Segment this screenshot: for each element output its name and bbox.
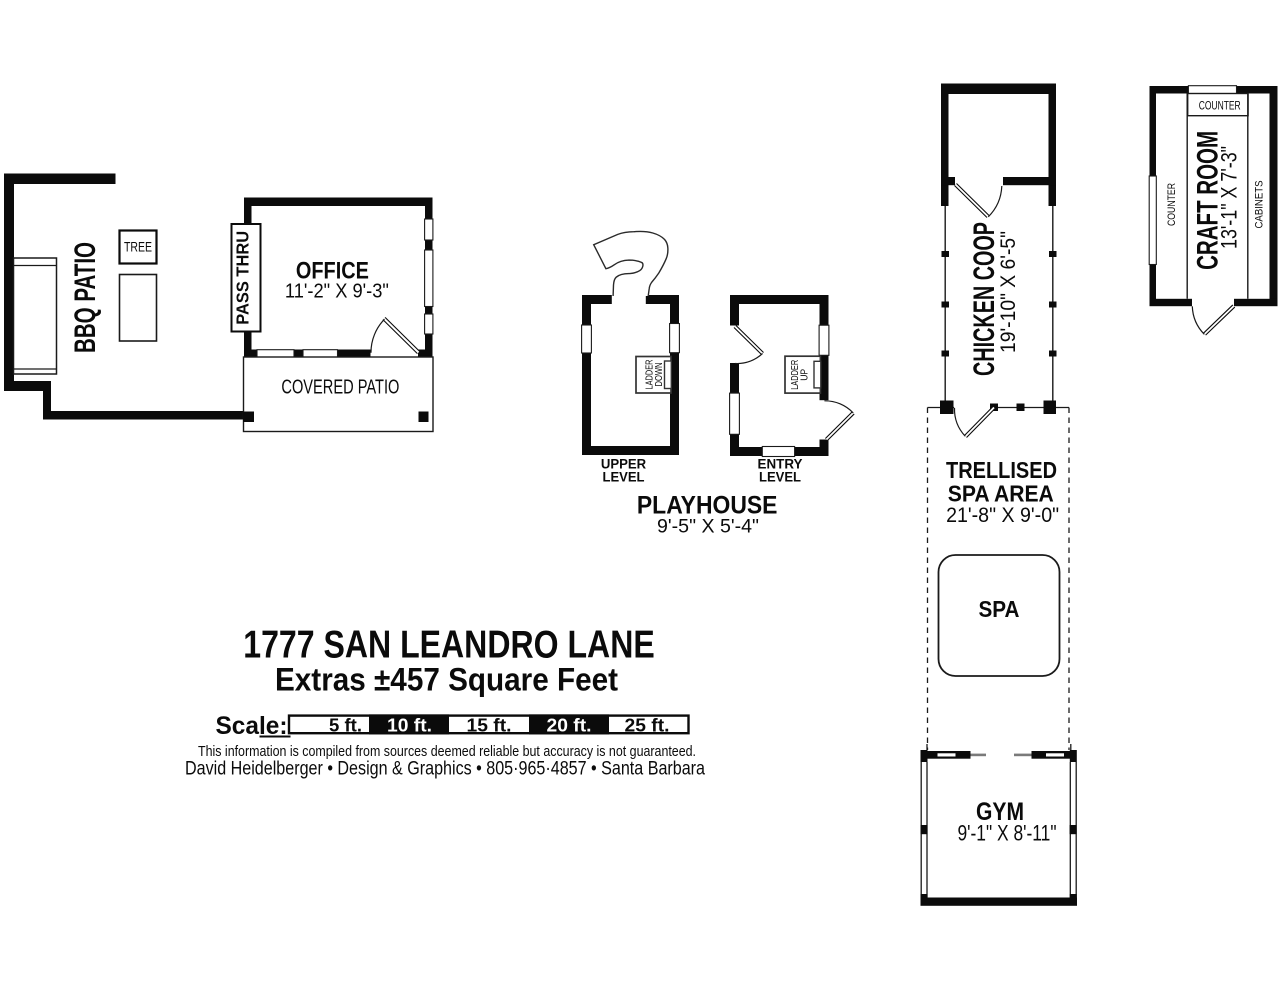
svg-text:21'-8" X 9'-0": 21'-8" X 9'-0" bbox=[946, 504, 1059, 527]
svg-text:11'-2" X 9'-3": 11'-2" X 9'-3" bbox=[285, 281, 389, 303]
svg-text:19'-10" X 6'-5": 19'-10" X 6'-5" bbox=[996, 231, 1020, 353]
svg-text:PASS THRU: PASS THRU bbox=[233, 231, 253, 325]
svg-text:13'-1" X 7'-3": 13'-1" X 7'-3" bbox=[1217, 146, 1242, 249]
svg-text:TREE: TREE bbox=[124, 239, 152, 255]
svg-text:9'-1" X 8'-11": 9'-1" X 8'-11" bbox=[958, 821, 1057, 846]
svg-text:SPA AREA: SPA AREA bbox=[948, 481, 1054, 507]
svg-text:COVERED PATIO: COVERED PATIO bbox=[281, 376, 399, 398]
svg-text:UP: UP bbox=[800, 369, 811, 381]
svg-text:COUNTER: COUNTER bbox=[1199, 99, 1241, 113]
svg-text:David Heidelberger • Design &: David Heidelberger • Design & Graphics •… bbox=[185, 759, 705, 780]
svg-text:BBQ PATIO: BBQ PATIO bbox=[69, 242, 102, 353]
svg-text:5 ft.: 5 ft. bbox=[329, 716, 362, 736]
svg-text:TRELLISED: TRELLISED bbox=[946, 457, 1057, 483]
svg-text:This information is compiled f: This information is compiled from source… bbox=[198, 743, 696, 760]
svg-text:DOWN: DOWN bbox=[654, 363, 665, 387]
svg-text:SPA: SPA bbox=[979, 596, 1020, 622]
svg-text:9'-5" X 5'-4": 9'-5" X 5'-4" bbox=[657, 516, 759, 538]
svg-text:LEVEL: LEVEL bbox=[603, 470, 645, 485]
svg-text:1777 SAN LEANDRO LANE: 1777 SAN LEANDRO LANE bbox=[243, 624, 655, 667]
svg-text:10 ft.: 10 ft. bbox=[387, 716, 432, 736]
svg-text:25 ft.: 25 ft. bbox=[625, 716, 670, 736]
svg-text:15 ft.: 15 ft. bbox=[467, 716, 512, 736]
svg-text:CABINETS: CABINETS bbox=[1254, 181, 1266, 229]
svg-text:Extras ±457 Square Feet: Extras ±457 Square Feet bbox=[275, 662, 618, 698]
svg-text:LEVEL: LEVEL bbox=[759, 470, 801, 485]
svg-text:COUNTER: COUNTER bbox=[1166, 183, 1178, 226]
svg-text:20 ft.: 20 ft. bbox=[547, 716, 592, 736]
